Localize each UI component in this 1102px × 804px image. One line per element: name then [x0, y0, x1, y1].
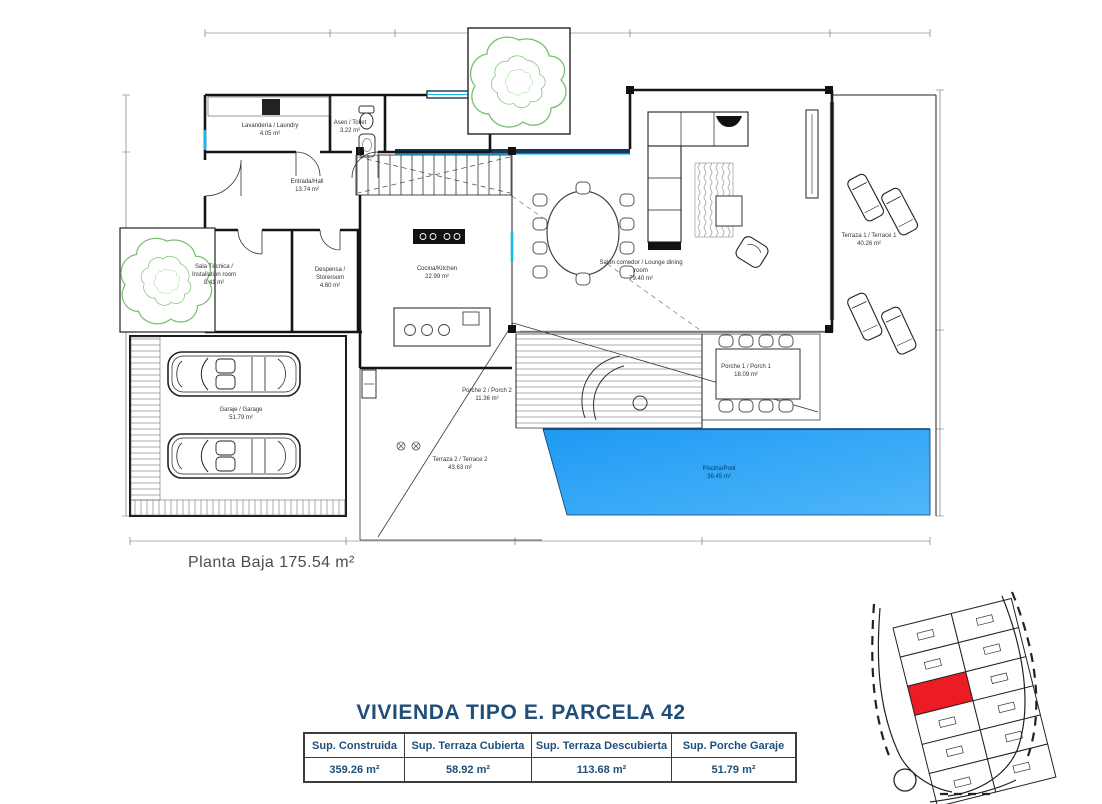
- car-2: [168, 434, 300, 478]
- site-plan: [872, 592, 1056, 804]
- kitchen-fixtures: [362, 229, 490, 398]
- wood-deck: [516, 334, 702, 428]
- coffee-table: [716, 196, 742, 226]
- doors: [201, 148, 378, 254]
- summary-table-value-row: 359.26 m² 58.92 m² 113.68 m² 51.79 m²: [305, 758, 795, 781]
- table-value-porche-garaje: 51.79 m²: [672, 758, 795, 781]
- garage: [130, 336, 346, 516]
- architectural-drawing: [0, 0, 1102, 804]
- table-header-construida: Sup. Construida: [305, 734, 405, 757]
- washer-icon: [262, 99, 280, 115]
- table-value-construida: 359.26 m²: [305, 758, 405, 781]
- room-label-kitchen: Cocina/Kitchen 22.99 m²: [397, 265, 477, 281]
- room-label-installation: Sala Técnica / Installation room 8.41 m²: [181, 263, 247, 287]
- summary-table-header-row: Sup. Construida Sup. Terraza Cubierta Su…: [305, 734, 795, 758]
- room-label-porch1: Porche 1 / Porch 1 18.09 m²: [710, 363, 782, 379]
- floor-plan-sheet: Lavandería / Laundry 4.05 m² Aseo / Toil…: [0, 0, 1102, 804]
- laundry-fixtures: [208, 97, 330, 116]
- room-label-lounge: Salón comedor / Lounge dining room 79.40…: [599, 259, 683, 283]
- room-label-hall: Entrada/Hall 13.74 m²: [272, 178, 342, 194]
- table-value-terraza-cubierta: 58.92 m²: [405, 758, 532, 781]
- table-header-porche-garaje: Sup. Porche Garaje: [672, 734, 795, 757]
- table-header-terraza-cubierta: Sup. Terraza Cubierta: [405, 734, 532, 757]
- armchair: [734, 234, 770, 269]
- roundabout-icon: [894, 769, 916, 791]
- car-1: [168, 352, 300, 396]
- table-value-terraza-descubierta: 113.68 m²: [532, 758, 672, 781]
- kitchen-island: [394, 308, 490, 346]
- floor-caption: Planta Baja 175.54 m²: [188, 554, 355, 572]
- room-label-toilet: Aseo / Toilet 3.22 m²: [325, 119, 375, 135]
- summary-table: Sup. Construida Sup. Terraza Cubierta Su…: [303, 732, 797, 783]
- room-label-porch2: Porche 2 / Porch 2 11.36 m²: [448, 387, 526, 403]
- room-label-storeroom: Despensa / Storeroom 4.60 m²: [304, 266, 356, 290]
- lounge-furniture: [648, 110, 818, 270]
- room-label-pool: Piscina/Pool 36.45 m²: [687, 465, 751, 481]
- tv-unit: [806, 110, 818, 198]
- sun-loungers: [846, 173, 919, 356]
- room-label-garage: Garaje / Garage 51.79 m²: [201, 406, 281, 422]
- light-symbols: [397, 442, 420, 450]
- room-label-laundry: Lavandería / Laundry 4.05 m²: [228, 122, 312, 138]
- table-header-terraza-descubierta: Sup. Terraza Descubierta: [532, 734, 672, 757]
- cooktop-icon: [413, 229, 465, 244]
- page-title: VIVIENDA TIPO E. PARCELA 42: [356, 701, 685, 725]
- room-label-terrace1: Terraza 1 / Terrace 1 40.26 m²: [830, 232, 908, 248]
- planter-top: [468, 28, 570, 134]
- room-label-terrace2: Terraza 2 / Terrace 2 43.63 m²: [415, 456, 505, 472]
